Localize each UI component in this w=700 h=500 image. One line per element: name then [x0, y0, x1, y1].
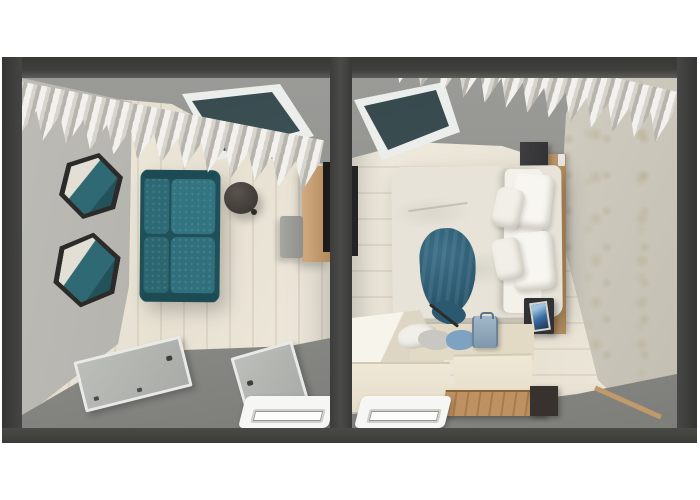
suitcase [472, 316, 498, 348]
living-radiator [238, 396, 330, 428]
divider-wall [330, 57, 352, 443]
right-outer-wall [677, 57, 697, 443]
sofa-back-cushion [144, 177, 169, 234]
bedroom [352, 78, 677, 428]
door-hinge [137, 387, 143, 392]
radiator-slot [250, 409, 325, 423]
small-dark-cabinet [530, 386, 558, 416]
door-hinge [93, 396, 99, 401]
living-room [22, 78, 330, 428]
bedroom-radiator [354, 396, 452, 428]
tv-screen [323, 162, 330, 252]
teal-sofa [139, 170, 220, 303]
door-handle [166, 355, 173, 361]
sofa-armrest [141, 293, 217, 303]
sofa-back-cushion [143, 237, 168, 294]
sofa-armrest [142, 170, 216, 180]
sofa-seat-cushion [170, 237, 214, 294]
table-leg [251, 209, 257, 215]
radiator-slot [366, 409, 441, 423]
media-cabinet [280, 216, 303, 258]
floorplan-scene [0, 0, 700, 500]
round-coffee-table [224, 182, 258, 214]
bedroom-tv-screen [352, 166, 358, 256]
door-handle [247, 380, 254, 386]
double-bed [392, 166, 562, 318]
suitcase-handle [480, 312, 494, 319]
wall-switch [558, 154, 565, 166]
bottom-outer-wall [2, 428, 697, 443]
left-outer-wall [2, 57, 22, 443]
sofa-seat-cushion [171, 179, 215, 234]
